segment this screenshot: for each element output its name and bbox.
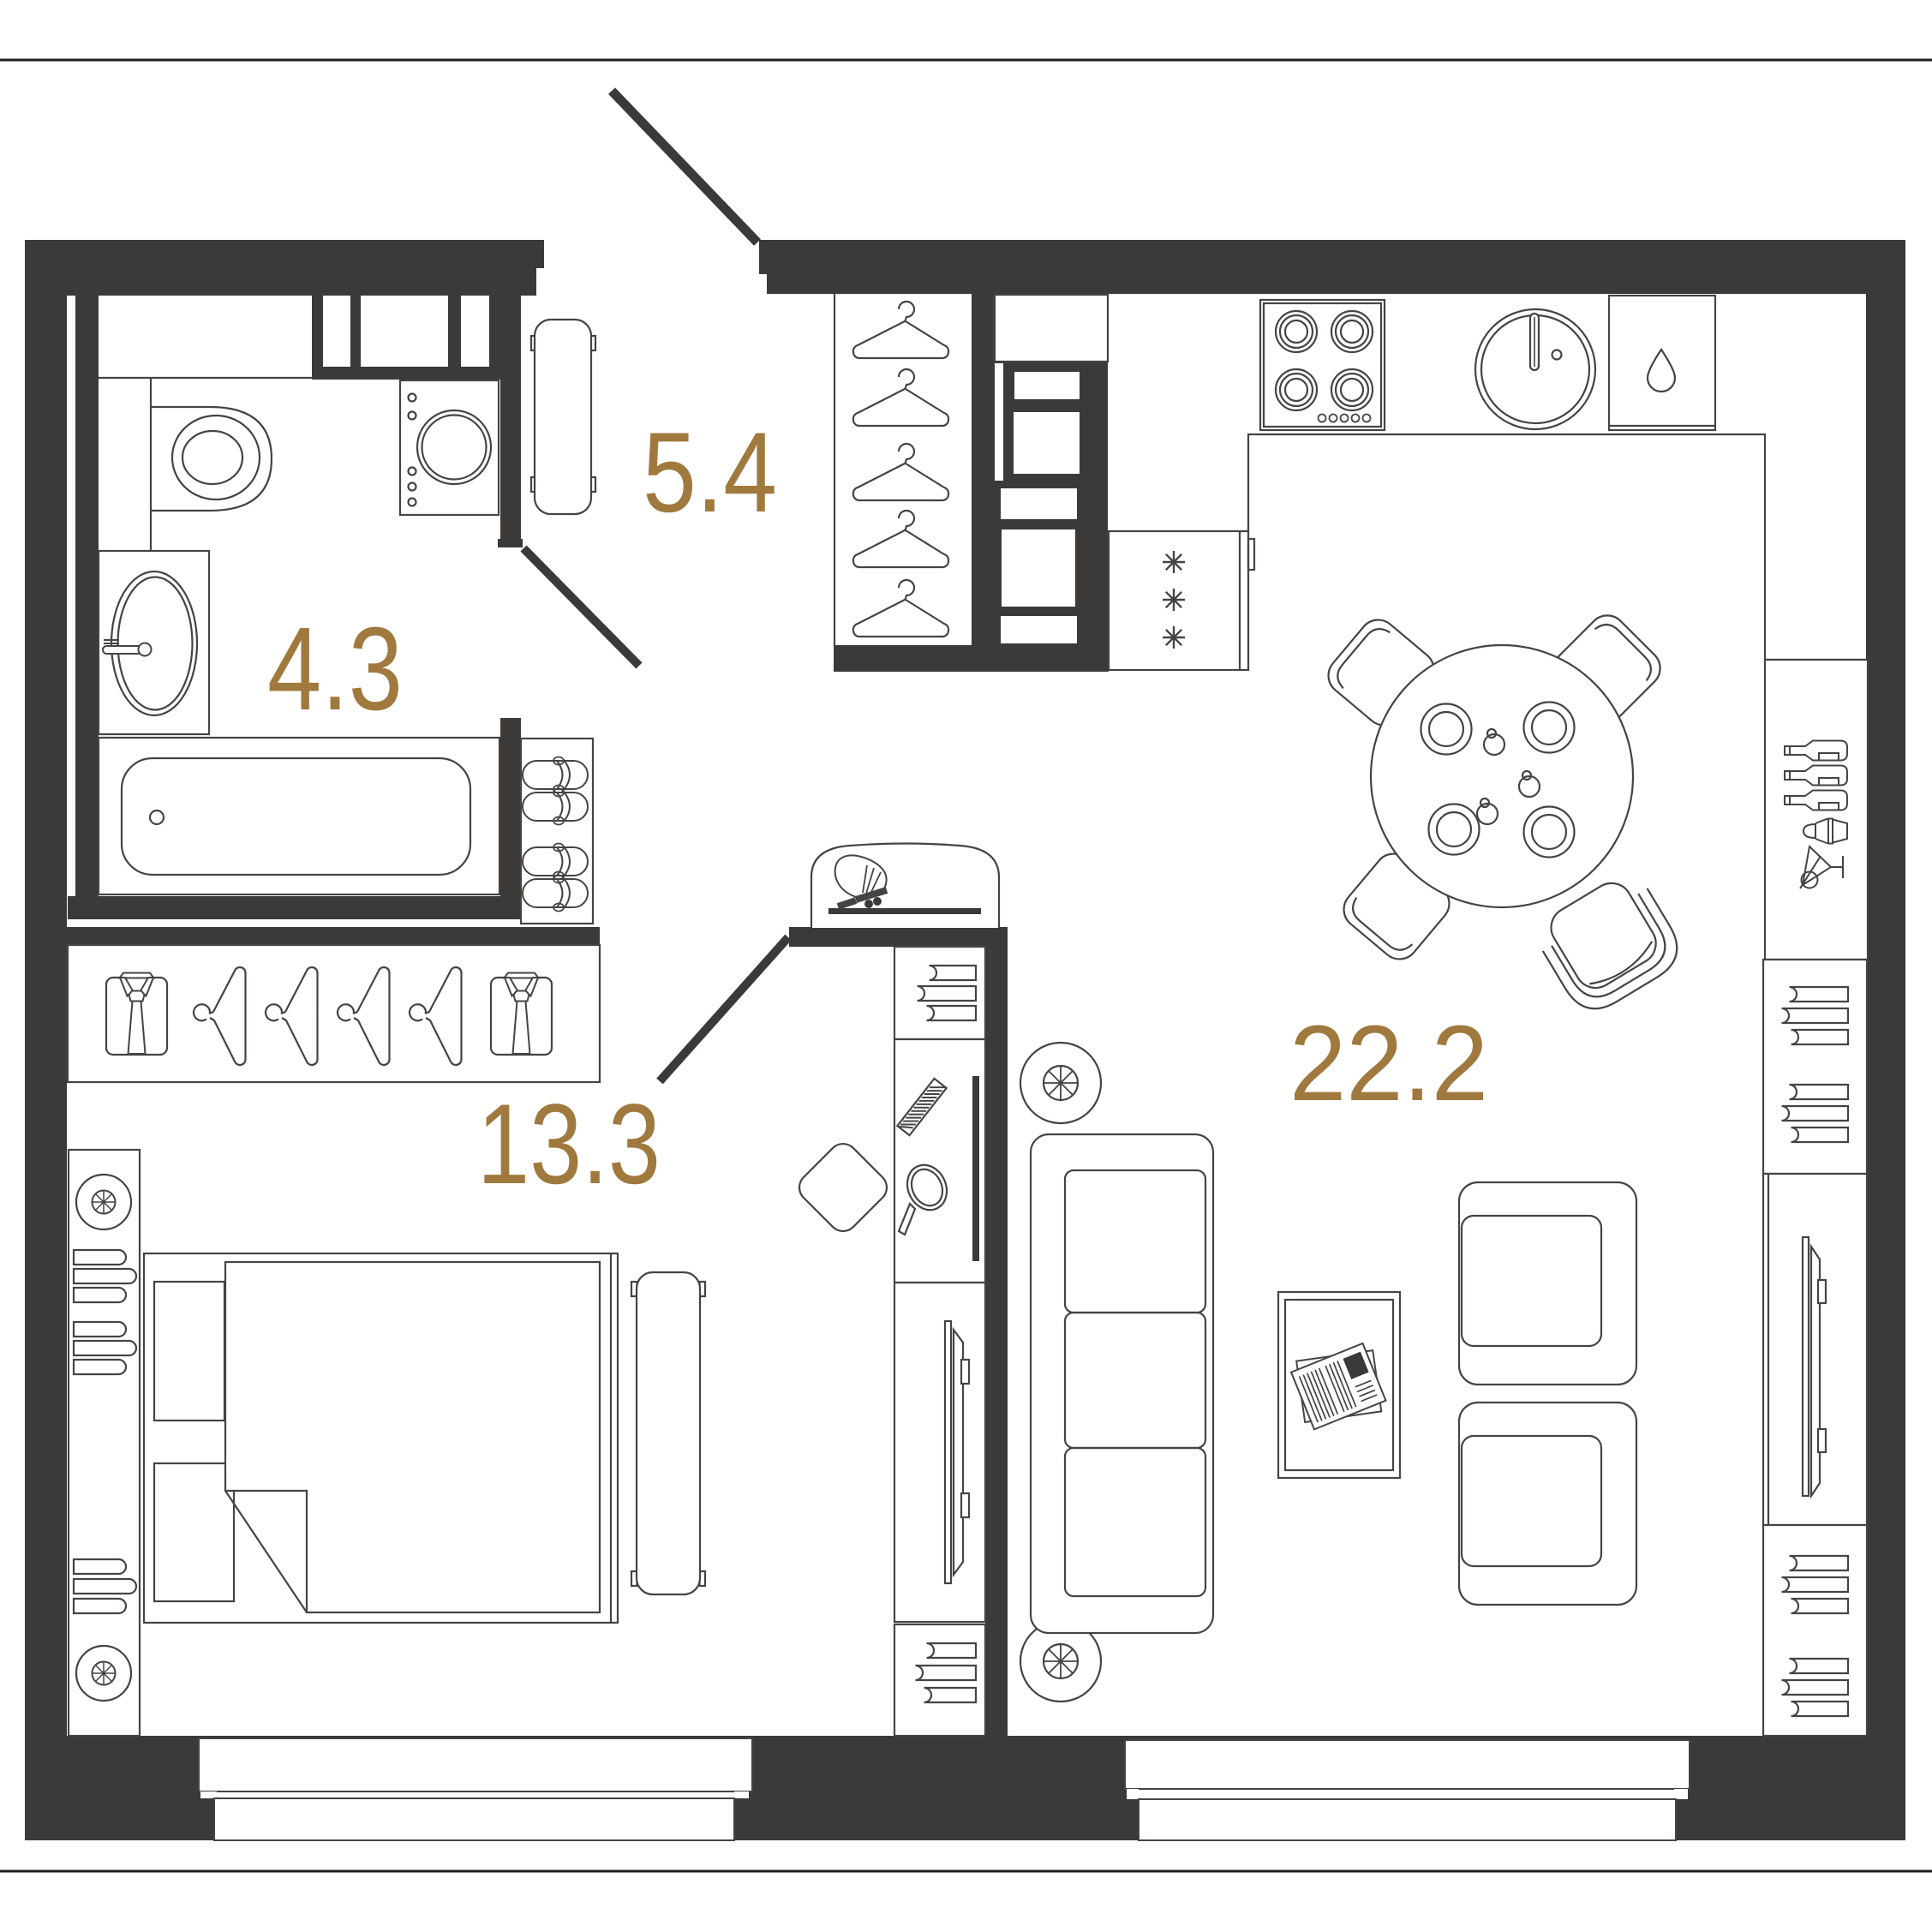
svg-text:13.3: 13.3 xyxy=(477,1081,661,1208)
svg-text:4.3: 4.3 xyxy=(267,603,403,735)
svg-text:5.4: 5.4 xyxy=(643,410,777,536)
svg-text:22.2: 22.2 xyxy=(1289,1004,1488,1123)
